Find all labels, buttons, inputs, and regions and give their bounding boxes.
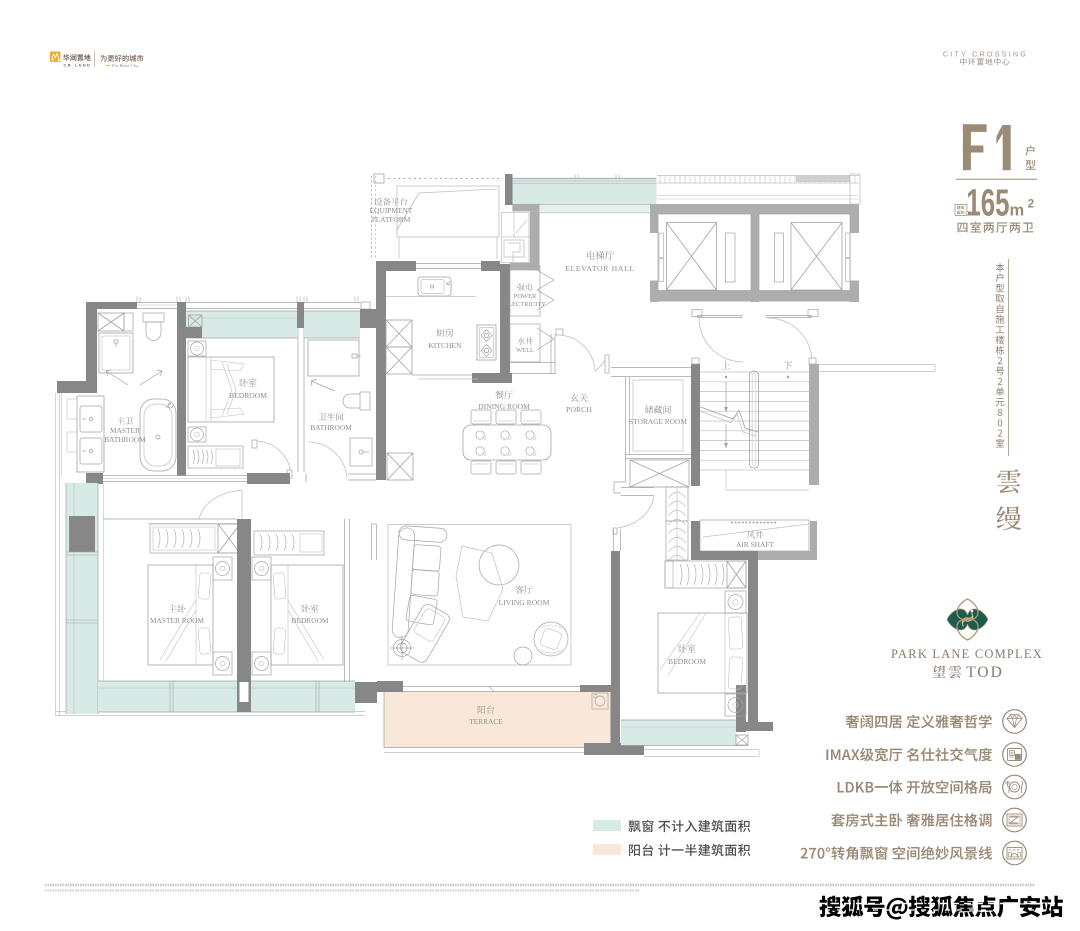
svg-text:165: 165 — [966, 180, 1009, 223]
svg-text:MASTER: MASTER — [110, 426, 140, 435]
svg-text:POWER: POWER — [514, 293, 537, 300]
svg-text:CR LAND: CR LAND — [64, 62, 92, 67]
svg-text:STORAGE ROOM: STORAGE ROOM — [629, 417, 687, 426]
svg-text:BATHROOM: BATHROOM — [310, 423, 352, 432]
svg-text:PLATFORM: PLATFORM — [372, 215, 411, 224]
svg-text:KITCHEN: KITCHEN — [428, 341, 462, 350]
svg-text:For Better City: For Better City — [111, 63, 138, 68]
svg-text:TOD: TOD — [966, 664, 1004, 681]
svg-text:PARK LANE COMPLEX: PARK LANE COMPLEX — [891, 647, 1043, 661]
svg-text:AIR SHAFT: AIR SHAFT — [736, 540, 774, 549]
svg-text:TERRACE: TERRACE — [469, 717, 503, 726]
svg-text:BEDROOM: BEDROOM — [229, 391, 267, 400]
svg-text:LIVING ROOM: LIVING ROOM — [499, 598, 550, 607]
svg-text:BEDROOM: BEDROOM — [292, 616, 329, 625]
svg-text:DINING ROOM: DINING ROOM — [478, 402, 530, 411]
svg-text:PORCH: PORCH — [566, 405, 592, 414]
svg-text:2: 2 — [1028, 199, 1034, 211]
svg-text:BATHROOM: BATHROOM — [104, 435, 146, 444]
svg-text:BEDROOM: BEDROOM — [668, 657, 706, 666]
svg-text:m: m — [1010, 201, 1025, 219]
svg-text:MASTER ROOM: MASTER ROOM — [150, 616, 204, 625]
svg-text:ELECTRICITY: ELECTRICITY — [504, 301, 546, 308]
svg-text:EQUIPMENT: EQUIPMENT — [370, 206, 413, 215]
svg-text:ELEVATOR HALL: ELEVATOR HALL — [565, 264, 635, 273]
svg-text:CITY CROSSING: CITY CROSSING — [943, 50, 1028, 59]
svg-text:WELL: WELL — [516, 347, 534, 354]
